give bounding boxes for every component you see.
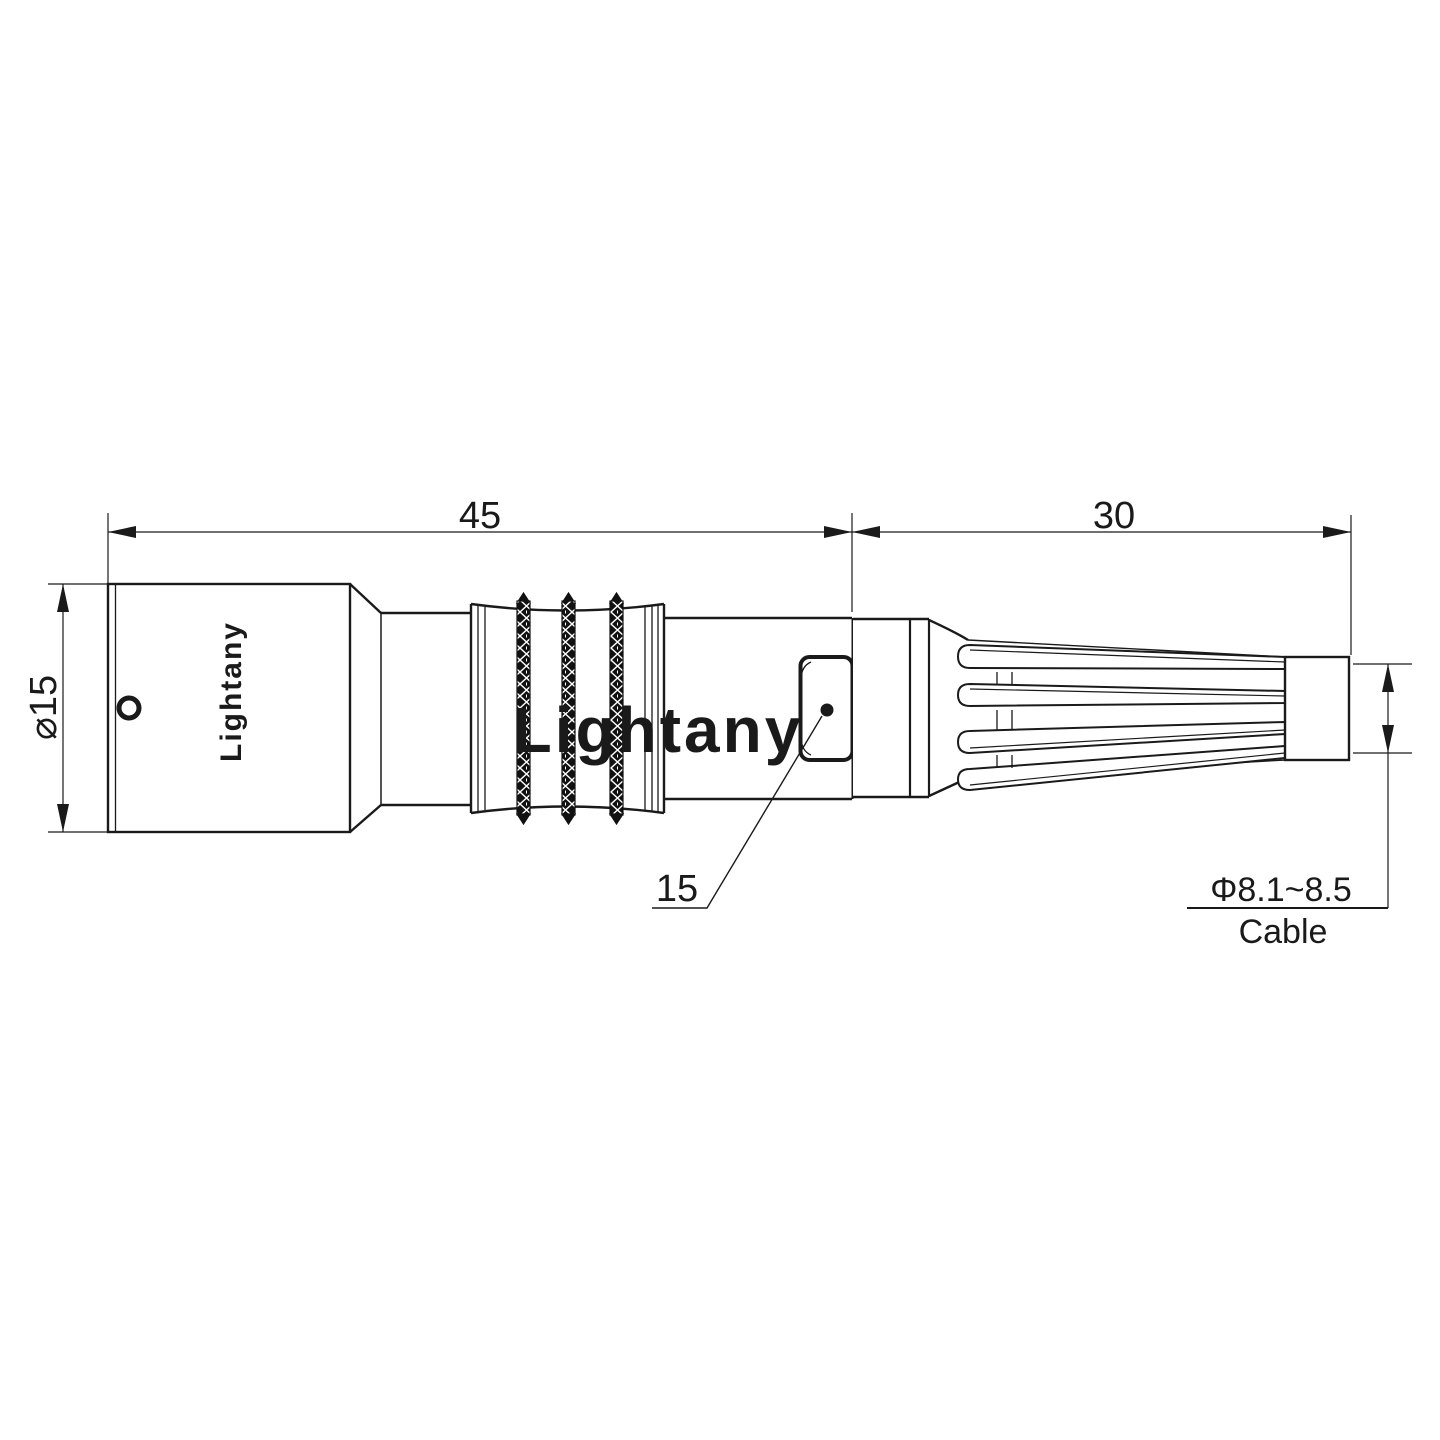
boot-fin <box>958 722 1285 753</box>
boot-chamfer-top <box>929 620 968 640</box>
knurl-band-tip <box>610 814 623 824</box>
arrowhead-left <box>852 526 880 538</box>
body-chamfer <box>350 584 381 832</box>
knurl-band-tip <box>562 814 575 824</box>
watermark: Lightany <box>513 694 804 766</box>
body-brand-label: Lightany <box>215 621 248 762</box>
arrowhead-right <box>1323 526 1351 538</box>
arrowhead-right <box>824 526 852 538</box>
arrowhead-left <box>108 526 136 538</box>
latch-button <box>801 657 853 760</box>
cable-end-cap <box>1285 657 1349 760</box>
cable-diameter-label: Φ8.1~8.5 <box>1210 871 1352 909</box>
front-body <box>108 584 471 832</box>
arrowhead-up <box>1382 664 1394 692</box>
dim-45-label: 45 <box>459 495 501 537</box>
dim-30-label: 30 <box>1093 495 1135 537</box>
technical-drawing: Lightany <box>0 0 1440 1440</box>
rear-nut <box>853 619 929 797</box>
knurl-band-tip <box>517 814 530 824</box>
cable-caption-label: Cable <box>1239 913 1328 951</box>
strain-relief-boot <box>929 620 1285 796</box>
cylinder-a <box>381 613 471 805</box>
dimension-diameter-15: ⌀15 <box>23 584 112 832</box>
arrowhead-up <box>57 584 69 612</box>
arrowhead-down <box>57 804 69 832</box>
boot-fin <box>958 746 1285 790</box>
rear-nut-fill <box>853 619 929 797</box>
drawing-canvas: Lightany <box>0 0 1440 1440</box>
latch-leader-dot <box>821 704 834 717</box>
arrowhead-down <box>1382 725 1394 753</box>
latch-size-label: 15 <box>656 868 698 910</box>
dim-diameter-label: ⌀15 <box>23 675 65 740</box>
